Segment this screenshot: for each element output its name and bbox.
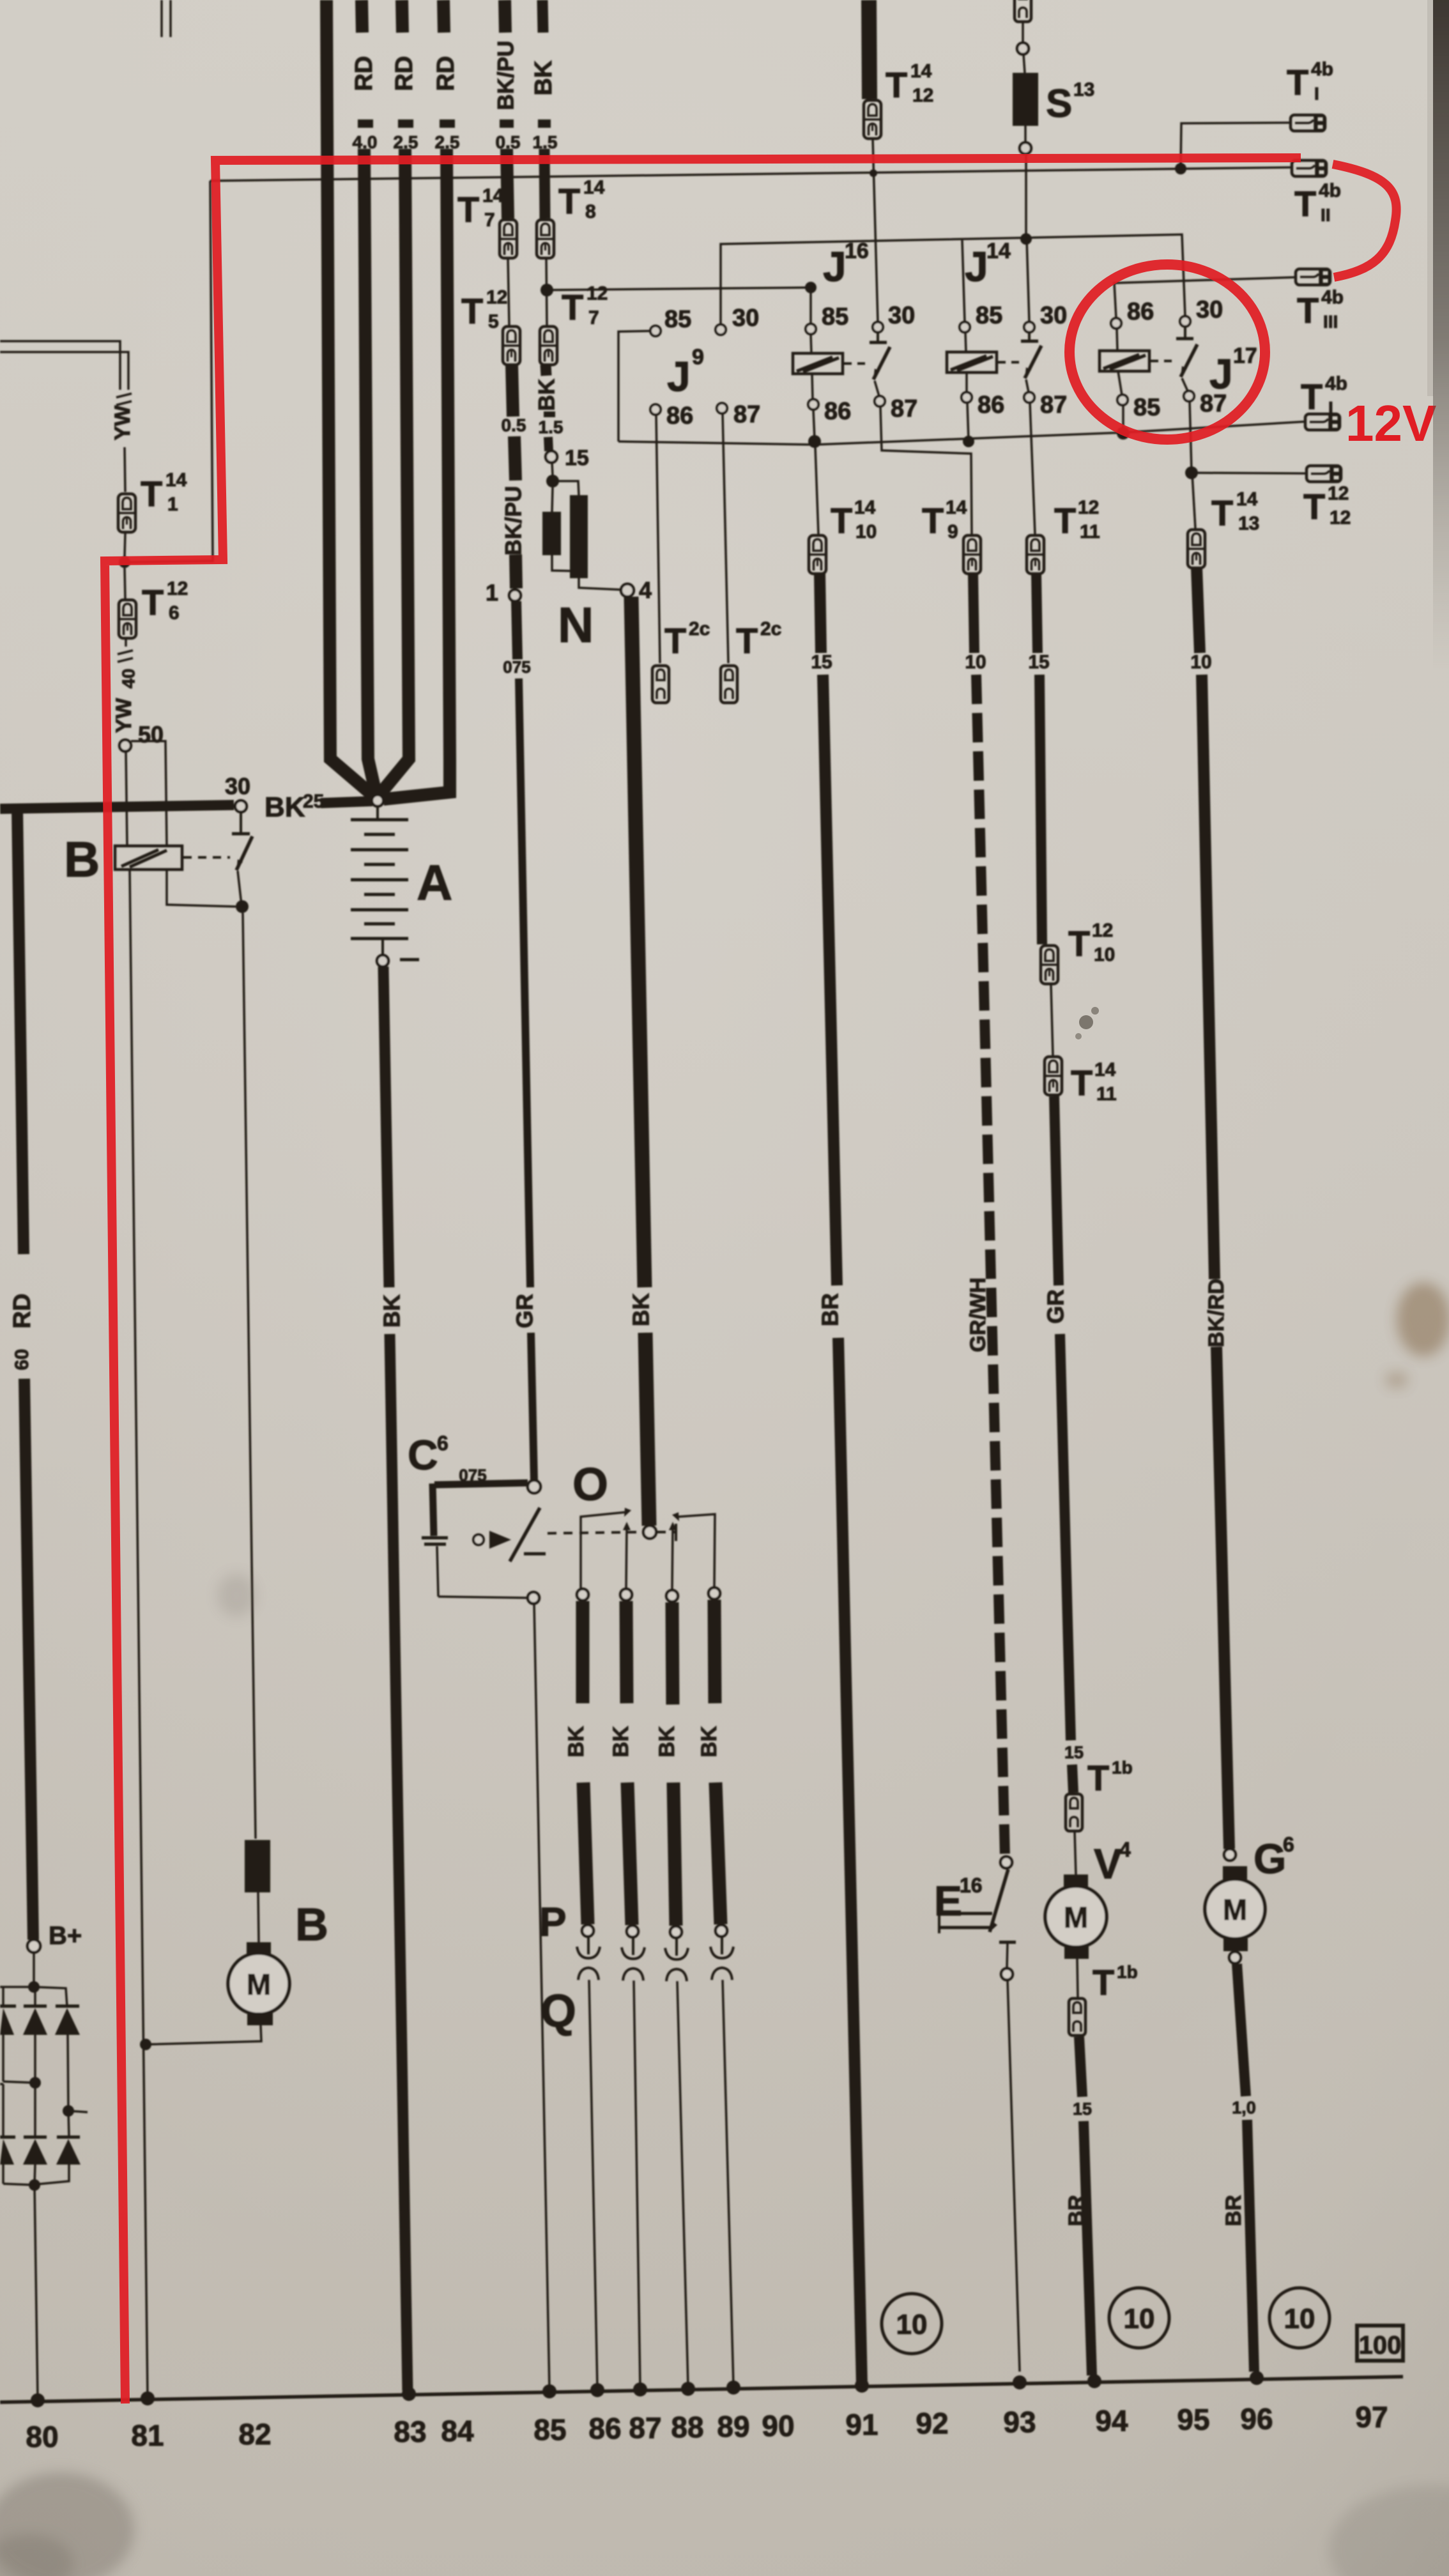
- svg-text:12: 12: [1092, 920, 1113, 941]
- svg-text:BK: BK: [564, 1726, 588, 1758]
- svg-text:T: T: [1294, 183, 1316, 224]
- svg-text:15: 15: [811, 652, 832, 673]
- svg-text:10: 10: [965, 652, 986, 673]
- svg-text:Q: Q: [540, 1986, 576, 2037]
- svg-text:T: T: [1071, 1062, 1092, 1103]
- svg-text:2c: 2c: [760, 618, 781, 640]
- svg-text:BK: BK: [628, 1293, 654, 1326]
- svg-text:87: 87: [1040, 392, 1067, 418]
- svg-text:BK: BK: [530, 60, 557, 95]
- svg-text:2.5: 2.5: [435, 132, 460, 152]
- svg-text:83: 83: [394, 2415, 426, 2448]
- svg-text:85: 85: [664, 306, 691, 333]
- svg-text:4b: 4b: [1321, 287, 1344, 308]
- svg-text:0.5: 0.5: [502, 415, 526, 435]
- svg-text:12: 12: [1328, 483, 1349, 504]
- svg-text:O: O: [572, 1459, 608, 1510]
- svg-text:BR: BR: [817, 1293, 843, 1326]
- svg-text:BK: BK: [534, 379, 559, 411]
- svg-text:GR/WH: GR/WH: [966, 1277, 990, 1352]
- svg-text:BK: BK: [697, 1726, 721, 1758]
- svg-text:T: T: [664, 620, 686, 661]
- svg-text:12V: 12V: [1345, 395, 1436, 452]
- svg-text:RD: RD: [351, 56, 378, 91]
- svg-text:11: 11: [1096, 1084, 1117, 1105]
- svg-text:13: 13: [1073, 79, 1094, 100]
- svg-text:III: III: [1323, 312, 1338, 332]
- svg-text:B: B: [295, 1899, 328, 1951]
- svg-text:T: T: [1211, 493, 1233, 533]
- svg-text:5: 5: [488, 311, 499, 332]
- svg-text:12: 12: [167, 578, 188, 599]
- svg-text:10: 10: [896, 2309, 928, 2340]
- svg-text:87: 87: [891, 395, 917, 422]
- svg-text:87: 87: [733, 401, 760, 428]
- svg-text:14: 14: [1094, 1059, 1116, 1080]
- svg-text:86: 86: [666, 402, 693, 429]
- svg-text:94: 94: [1095, 2404, 1128, 2437]
- svg-text:14: 14: [986, 239, 1011, 263]
- svg-text:2.5: 2.5: [394, 132, 418, 152]
- svg-text:40: 40: [118, 668, 138, 688]
- svg-text:30: 30: [732, 305, 759, 332]
- svg-text:14: 14: [1236, 489, 1258, 510]
- svg-text:12: 12: [1330, 507, 1351, 528]
- svg-text:9: 9: [692, 345, 704, 369]
- svg-text:T: T: [1087, 1758, 1109, 1798]
- svg-text:87: 87: [1200, 390, 1227, 417]
- svg-text:YW: YW: [111, 405, 135, 441]
- svg-text:I: I: [1328, 398, 1333, 418]
- svg-text:4b: 4b: [1325, 373, 1347, 394]
- svg-text:BK: BK: [655, 1726, 679, 1758]
- svg-text:92: 92: [916, 2407, 948, 2440]
- svg-text:YW: YW: [112, 698, 136, 733]
- svg-text:16: 16: [845, 239, 869, 263]
- svg-text:30: 30: [1040, 302, 1067, 329]
- svg-text:85: 85: [976, 302, 1002, 329]
- svg-text:BK: BK: [609, 1726, 633, 1758]
- svg-text:T: T: [1068, 923, 1090, 963]
- svg-text:86: 86: [977, 392, 1004, 418]
- svg-text:S: S: [1046, 82, 1072, 126]
- svg-text:86: 86: [1127, 298, 1154, 325]
- svg-text:10: 10: [1190, 652, 1211, 673]
- svg-text:4b: 4b: [1319, 180, 1341, 201]
- svg-text:15: 15: [565, 446, 589, 470]
- svg-text:10: 10: [1124, 2303, 1155, 2334]
- svg-text:90: 90: [762, 2409, 794, 2442]
- svg-text:1.5: 1.5: [533, 132, 558, 152]
- svg-text:T: T: [558, 181, 580, 221]
- svg-text:BK: BK: [264, 792, 305, 823]
- svg-text:I: I: [1314, 84, 1319, 103]
- svg-text:12: 12: [912, 85, 933, 106]
- svg-text:M: M: [1223, 1893, 1247, 1926]
- svg-text:BK/PU: BK/PU: [501, 486, 526, 556]
- svg-text:N: N: [558, 597, 594, 653]
- svg-text:14: 14: [165, 470, 187, 491]
- svg-text:85: 85: [822, 303, 848, 330]
- svg-text:87: 87: [629, 2411, 661, 2444]
- svg-text:7: 7: [588, 307, 599, 328]
- svg-text:0.5: 0.5: [496, 132, 521, 152]
- svg-text:95: 95: [1177, 2403, 1209, 2436]
- svg-text:80: 80: [26, 2420, 58, 2453]
- svg-text:10: 10: [855, 521, 877, 542]
- svg-text:T: T: [141, 473, 162, 514]
- svg-text:BK/RD: BK/RD: [1204, 1278, 1229, 1347]
- svg-text:60: 60: [11, 1349, 33, 1370]
- svg-text:T: T: [1301, 376, 1322, 417]
- svg-text:T: T: [461, 291, 483, 331]
- svg-text:A: A: [417, 854, 452, 910]
- svg-text:BK/PU: BK/PU: [493, 41, 518, 111]
- svg-text:1.5: 1.5: [539, 417, 563, 437]
- svg-text:86: 86: [824, 398, 851, 425]
- svg-text:T: T: [831, 500, 852, 540]
- svg-text:30: 30: [225, 773, 250, 799]
- svg-text:15: 15: [1028, 652, 1049, 673]
- svg-text:2c: 2c: [689, 618, 710, 640]
- svg-text:C: C: [408, 1431, 438, 1478]
- svg-text:89: 89: [717, 2410, 749, 2443]
- svg-text:96: 96: [1240, 2402, 1273, 2435]
- svg-text:81: 81: [131, 2419, 164, 2452]
- svg-text:17: 17: [1233, 344, 1257, 368]
- svg-text:T: T: [885, 65, 907, 105]
- svg-text:93: 93: [1003, 2405, 1036, 2439]
- svg-text:II: II: [1321, 205, 1331, 225]
- svg-text:8: 8: [585, 201, 596, 222]
- svg-text:RD: RD: [391, 56, 418, 91]
- svg-text:T: T: [457, 189, 479, 229]
- svg-text:30: 30: [888, 302, 915, 329]
- svg-text:T: T: [922, 500, 944, 540]
- svg-text:84: 84: [441, 2414, 474, 2448]
- svg-text:14: 14: [910, 61, 932, 82]
- svg-text:BR: BR: [1064, 2195, 1089, 2226]
- svg-text:BK: BK: [379, 1294, 405, 1328]
- svg-text:075: 075: [459, 1466, 486, 1485]
- svg-text:B+: B+: [49, 1922, 82, 1950]
- svg-text:G: G: [1253, 1835, 1286, 1882]
- svg-text:15: 15: [1073, 2099, 1092, 2119]
- svg-text:15: 15: [1064, 1743, 1084, 1762]
- svg-text:13: 13: [1238, 513, 1259, 534]
- svg-text:16: 16: [960, 1874, 983, 1897]
- svg-text:RD: RD: [9, 1294, 36, 1329]
- svg-text:6: 6: [169, 602, 180, 624]
- svg-text:075: 075: [503, 657, 530, 677]
- svg-text:J: J: [823, 243, 847, 290]
- svg-text:85: 85: [1133, 394, 1160, 421]
- svg-text:14: 14: [482, 185, 504, 206]
- svg-text:50: 50: [138, 721, 164, 747]
- svg-text:6: 6: [437, 1432, 448, 1455]
- svg-text:97: 97: [1355, 2400, 1388, 2434]
- svg-text:91: 91: [845, 2408, 878, 2441]
- svg-text:J: J: [667, 353, 691, 400]
- svg-text:1: 1: [486, 579, 498, 606]
- svg-text:GR: GR: [512, 1294, 538, 1328]
- svg-text:4: 4: [639, 577, 652, 603]
- svg-text:4.0: 4.0: [353, 132, 378, 152]
- svg-text:88: 88: [671, 2411, 703, 2444]
- svg-text:P: P: [539, 1899, 567, 1945]
- svg-text:1: 1: [167, 494, 178, 515]
- svg-text:M: M: [1064, 1901, 1088, 1934]
- svg-text:12: 12: [1078, 497, 1099, 518]
- svg-text:T: T: [736, 620, 758, 661]
- svg-text:4: 4: [1119, 1838, 1131, 1861]
- svg-text:86: 86: [588, 2412, 621, 2445]
- svg-text:1,0: 1,0: [1232, 2098, 1256, 2117]
- svg-text:85: 85: [533, 2413, 566, 2446]
- svg-text:82: 82: [238, 2418, 271, 2451]
- svg-text:1b: 1b: [1112, 1758, 1133, 1777]
- svg-text:14: 14: [946, 497, 967, 518]
- svg-text:T: T: [562, 287, 583, 327]
- svg-text:B: B: [64, 831, 100, 887]
- svg-text:7: 7: [484, 210, 495, 231]
- svg-text:M: M: [247, 1968, 271, 2001]
- svg-text:T: T: [1287, 62, 1308, 102]
- svg-text:30: 30: [1196, 296, 1223, 323]
- svg-text:9: 9: [947, 521, 958, 542]
- svg-text:6: 6: [1283, 1833, 1294, 1856]
- svg-text:GR: GR: [1043, 1289, 1069, 1324]
- svg-text:12: 12: [486, 287, 507, 308]
- svg-text:12: 12: [586, 283, 608, 304]
- svg-text:14: 14: [854, 497, 876, 518]
- svg-text:4b: 4b: [1311, 59, 1333, 80]
- svg-text:1b: 1b: [1117, 1962, 1138, 1982]
- svg-text:T: T: [1297, 290, 1319, 330]
- svg-text:RD: RD: [433, 56, 459, 91]
- svg-text:V: V: [1094, 1840, 1122, 1887]
- svg-text:14: 14: [583, 177, 605, 198]
- svg-text:11: 11: [1080, 521, 1100, 542]
- svg-text:J: J: [965, 243, 988, 290]
- svg-text:10: 10: [1284, 2303, 1315, 2334]
- svg-text:T: T: [1054, 500, 1076, 540]
- svg-text:T: T: [1092, 1962, 1114, 2002]
- svg-text:10: 10: [1094, 944, 1115, 965]
- svg-text:BR: BR: [1222, 2195, 1246, 2226]
- svg-text:100: 100: [1359, 2331, 1402, 2359]
- svg-text:T: T: [142, 582, 164, 622]
- svg-text:T: T: [1303, 486, 1325, 526]
